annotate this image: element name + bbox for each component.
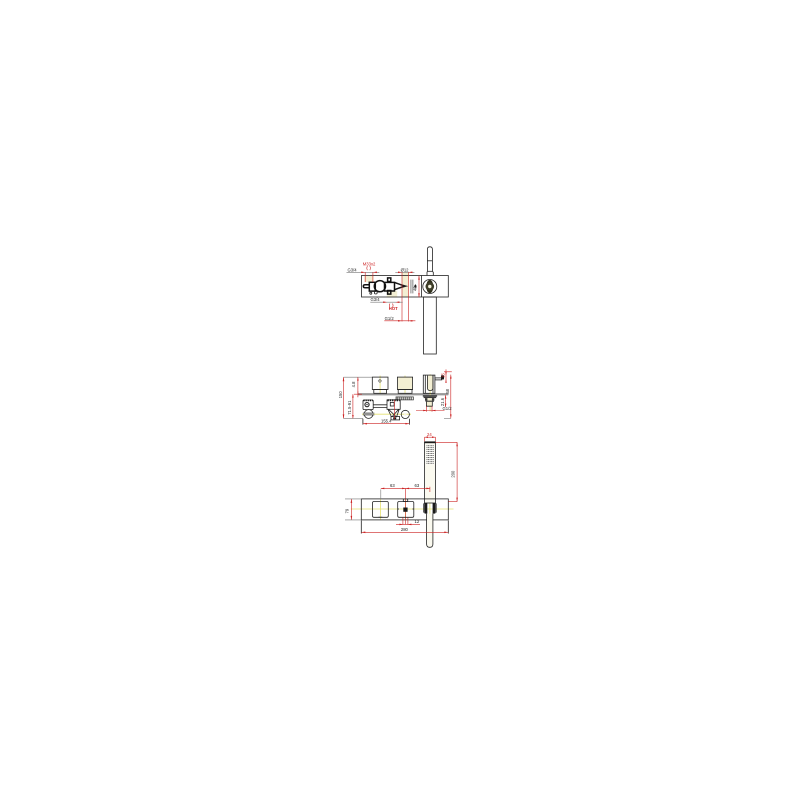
svg-text:G1/2: G1/2 (443, 406, 453, 411)
svg-text:58: 58 (445, 388, 450, 393)
svg-text:12: 12 (415, 519, 420, 524)
svg-text:79: 79 (345, 508, 350, 513)
svg-text:M33x2: M33x2 (363, 261, 376, 266)
svg-text:150: 150 (338, 391, 343, 399)
svg-text:280: 280 (401, 527, 409, 532)
svg-text:Ø12: Ø12 (401, 267, 410, 272)
svg-text:24: 24 (427, 432, 432, 437)
svg-text:200: 200 (451, 470, 456, 478)
svg-text:G3/4: G3/4 (371, 297, 381, 302)
svg-text:15: 15 (441, 373, 446, 378)
svg-text:63: 63 (415, 483, 420, 488)
svg-text:48: 48 (413, 286, 418, 291)
svg-text:155.4: 155.4 (381, 418, 392, 423)
svg-text:21.6: 21.6 (440, 397, 445, 406)
svg-text:G3/4: G3/4 (348, 268, 358, 273)
svg-text:G1/2: G1/2 (385, 316, 395, 321)
svg-text:63: 63 (390, 483, 395, 488)
svg-text:4.8: 4.8 (351, 381, 356, 387)
svg-text:71.5-91: 71.5-91 (347, 400, 352, 415)
svg-text:HOT: HOT (389, 306, 398, 311)
